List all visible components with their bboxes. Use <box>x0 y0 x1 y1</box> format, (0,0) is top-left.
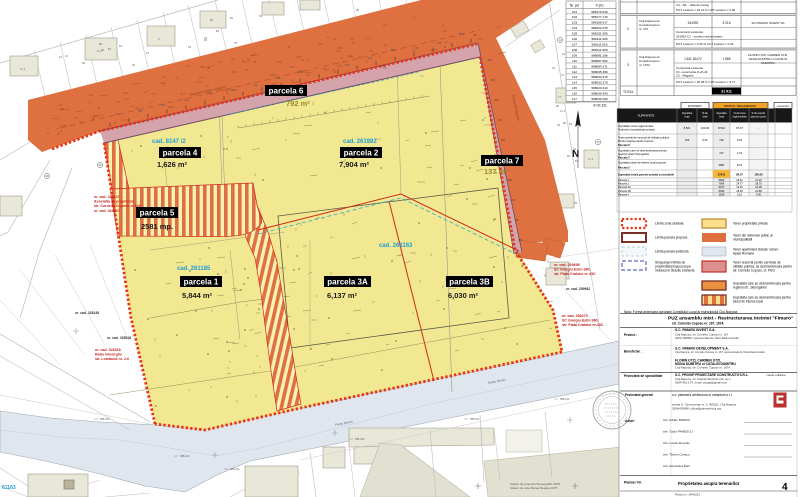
svg-text:21.89: 21.89 <box>755 189 762 193</box>
svg-text:1.61: 1.61 <box>737 151 743 155</box>
svg-text:Suprafata strazi de interes lo: Suprafata strazi de interes local propus… <box>618 161 667 165</box>
svg-text:nr. cad. 269695: nr. cad. 269695 <box>554 263 580 267</box>
svg-text:Parcela 3B: Parcela 3B <box>618 189 631 193</box>
svg-text:nr. cad. 328147: nr. cad. 328147 <box>94 209 120 213</box>
svg-text:0264-410.174, email: progip@gm: 0264-410.174, email: progip@gmail.com <box>675 380 728 384</box>
svg-text:PROPUS / REGLEMENTAT: PROPUS / REGLEMENTAT <box>724 104 757 108</box>
svg-text:316: 316 <box>368 56 373 60</box>
svg-text:DUMITRU: DUMITRU <box>761 61 774 65</box>
svg-text:6,030 m²: 6,030 m² <box>448 291 479 300</box>
svg-text:arh. Lucian Euranie: arh. Lucian Euranie <box>663 441 690 445</box>
svg-text:21.22: 21.22 <box>755 178 762 182</box>
svg-text:113: 113 <box>572 75 577 79</box>
svg-text:1626: 1626 <box>719 192 725 196</box>
svg-text:cad. 8147 /2: cad. 8147 /2 <box>152 139 186 145</box>
svg-text:strazi de interes local: strazi de interes local <box>733 300 763 304</box>
svg-text:Suprafata totala parcele priva: Suprafata totala parcele private constru… <box>618 173 675 177</box>
svg-text:28.70: 28.70 <box>755 182 762 186</box>
svg-text:Limita parcela propusa: Limita parcela propusa <box>655 236 687 240</box>
svg-text:216: 216 <box>207 91 212 95</box>
svg-text:137: 137 <box>719 151 724 155</box>
svg-text:Parcela 4: Parcela 4 <box>618 192 630 196</box>
svg-text:320: 320 <box>184 98 189 102</box>
svg-text:100.00: 100.00 <box>701 126 710 130</box>
svg-text:C4 - S8 -- hala de parcaj: C4 - S8 -- hala de parcaj <box>676 3 709 7</box>
svg-text:5844: 5844 <box>719 178 725 182</box>
svg-text:(mp): (mp) <box>685 116 690 119</box>
svg-text:SC FIMARO INVEST SA: SC FIMARO INVEST SA <box>751 21 784 25</box>
svg-text:parcela 5: parcela 5 <box>140 209 175 218</box>
svg-text:588084.271: 588084.271 <box>591 64 608 68</box>
svg-text:Cluj-Napoca, str. Corneliu Cop: Cluj-Napoca, str. Corneliu Coposu nr. 16… <box>675 350 765 354</box>
svg-text:Beneficiar :: Beneficiar : <box>624 350 642 354</box>
svg-text:114: 114 <box>572 81 577 85</box>
svg-text:103: 103 <box>572 21 577 25</box>
svg-text:regimul strazii Strungarilor: regimul strazii Strungarilor <box>618 152 649 156</box>
svg-text:104: 104 <box>572 26 577 30</box>
svg-text:713: 713 <box>322 67 327 71</box>
svg-text:108: 108 <box>572 48 577 52</box>
svg-text:609: 609 <box>437 41 442 45</box>
svg-text:POT existent = 5.45 % CUT: POT existent = 5.45 % CUT existent = 0.2… <box>676 42 734 46</box>
svg-text:SC Giurgiu Estin SRL: SC Giurgiu Estin SRL <box>562 319 600 323</box>
svg-text:nr. cad. 259982: nr. cad. 259982 <box>566 287 590 291</box>
svg-text:882: 882 <box>391 48 396 52</box>
svg-text:nr. cad. 328147: nr. cad. 328147 <box>94 195 120 199</box>
svg-text:- retele edilitare: - retele edilitare <box>765 373 786 377</box>
svg-text:3: 3 <box>627 63 629 67</box>
svg-text:112: 112 <box>572 70 577 74</box>
svg-text:588222.378: 588222.378 <box>591 26 608 30</box>
svg-text:POT existent = 26.41 % CU: POT existent = 26.41 % CUT existent = 0.… <box>676 8 735 12</box>
svg-text:0264 406066, reprezentata de T: 0264 406066, reprezentata de Tarta Radu … <box>675 336 739 340</box>
svg-text:arh. Tiberiu Ciolacu: arh. Tiberiu Ciolacu <box>663 453 690 457</box>
svg-text:total: total <box>703 116 708 119</box>
svg-text:Parcela 6: Parcela 6 <box>618 143 630 147</box>
svg-text:792 m²: 792 m² <box>286 99 310 108</box>
svg-text:86.07: 86.07 <box>736 173 743 177</box>
svg-text:parcela 6: parcela 6 <box>269 87 304 96</box>
svg-text:Ratiu Gheorghe: Ratiu Gheorghe <box>95 353 122 357</box>
svg-text:regimul str. .Strungarilor: regimul str. .Strungarilor <box>733 286 768 290</box>
svg-text:588081.166: 588081.166 <box>591 53 608 57</box>
svg-text:5,844 m²: 5,844 m² <box>182 291 213 300</box>
svg-text:110: 110 <box>572 59 577 63</box>
svg-text:7904: 7904 <box>719 182 725 186</box>
svg-text:378: 378 <box>115 112 120 116</box>
svg-text:7,904 m²: 7,904 m² <box>339 160 370 169</box>
svg-text:792: 792 <box>719 138 724 142</box>
svg-text:6,137 m²: 6,137 m² <box>327 291 358 300</box>
svg-text:2: 2 <box>627 27 629 31</box>
svg-text:261992: 261992 <box>688 21 699 25</box>
svg-text:435: 435 <box>414 46 419 50</box>
svg-text:588030.460: 588030.460 <box>591 97 608 101</box>
svg-text:27541: 27541 <box>718 173 726 177</box>
svg-text:117: 117 <box>572 97 577 101</box>
svg-text:102: 102 <box>572 15 577 19</box>
svg-text:C2 - Magazin: C2 - Magazin <box>676 74 694 78</box>
svg-text:parcela 3A: parcela 3A <box>327 278 368 287</box>
svg-text:279: 279 <box>460 32 465 36</box>
svg-text:nr. 167: nr. 167 <box>639 27 649 31</box>
svg-text:mutarea in strazile existente: mutarea in strazile existente <box>655 269 695 273</box>
svg-text:588035.360: 588035.360 <box>591 70 608 74</box>
svg-text:588175.816: 588175.816 <box>591 10 608 14</box>
svg-text:Pentru largirea strazii Coposu: Pentru largirea strazii Coposu <box>618 139 654 143</box>
svg-text:588188.917: 588188.917 <box>591 21 608 25</box>
svg-text:261992-C1 -- pavilion administ: 261992-C1 -- pavilion administrativ <box>676 34 723 38</box>
svg-text:Proiectant general: Proiectant general <box>625 393 653 397</box>
svg-text:588.193: 588.193 <box>470 417 480 421</box>
svg-text:Teren grevat de servituti de u: Teren grevat de servituti de utilitate p… <box>618 136 669 140</box>
svg-text:116: 116 <box>572 92 577 96</box>
svg-text:P+1: P+1 <box>560 109 566 113</box>
svg-text:Sistem de cote Marea Neagra 1: Sistem de cote Marea Neagra 1975 <box>510 486 558 490</box>
svg-text:8.501: 8.501 <box>684 126 691 130</box>
svg-text:Plansa / Nr.: Plansa / Nr. <box>624 481 642 485</box>
svg-text:309: 309 <box>345 63 350 67</box>
svg-text:Nr. pct: Nr. pct <box>570 4 579 8</box>
svg-text:cad. 261185: cad. 261185 <box>177 266 211 272</box>
svg-text:P+1: P+1 <box>20 67 26 71</box>
svg-text:8.15: 8.15 <box>737 163 743 167</box>
svg-text:9.32: 9.32 <box>737 138 743 142</box>
svg-text:CAD: 81472: CAD: 81472 <box>684 57 702 61</box>
svg-text:P+1: P+1 <box>588 157 594 161</box>
svg-text:str. Corneliu Coposu nr. 167,: str. Corneliu Coposu nr. 167, 167A <box>672 322 724 326</box>
svg-text:N: N <box>572 149 579 160</box>
svg-text:5.90: 5.90 <box>756 192 762 196</box>
svg-text:639: 639 <box>276 76 281 80</box>
svg-text:Total teren (proprietate priva: Total teren (proprietate privata) <box>618 128 655 132</box>
svg-text:588.193: 588.193 <box>180 454 190 458</box>
svg-text:S.C. FIMARO DEVELOPMENT S.A.: S.C. FIMARO DEVELOPMENT S.A. <box>675 346 729 350</box>
svg-text:794: 794 <box>253 83 258 87</box>
svg-text:-: - <box>758 127 759 130</box>
svg-text:Suprafata zonei reglementate: Suprafata zonei reglementate <box>618 124 654 128</box>
svg-text:18.31: 18.31 <box>736 178 743 182</box>
svg-text:Cluj-Napoca, str. Corneliu Cop: Cluj-Napoca, str. Corneliu Coposu nr. 16… <box>675 365 730 369</box>
svg-text:19.23: 19.23 <box>736 185 743 189</box>
svg-text:Parcela 5: Parcela 5 <box>618 166 630 170</box>
svg-text:POT existent = 26.48 % CU: POT existent = 26.48 % CUT existent = 0.… <box>676 80 735 84</box>
svg-text:534: 534 <box>138 109 143 113</box>
svg-text:1 888: 1 888 <box>723 57 731 61</box>
svg-text:5.10: 5.10 <box>737 192 743 196</box>
svg-text:parcela 7: parcela 7 <box>485 157 520 166</box>
svg-text:str. Piata Cralului nr 43C: str. Piata Cralului nr 43C <box>554 272 596 276</box>
svg-text:TOTAL: TOTAL <box>623 90 634 94</box>
svg-text:parcela 4: parcela 4 <box>163 149 198 158</box>
svg-text:2581 mp.: 2581 mp. <box>141 222 173 231</box>
svg-text:parcela 2: parcela 2 <box>344 149 379 158</box>
svg-text:Parcela 2: Parcela 2 <box>618 182 630 186</box>
svg-text:cad. 261163: cad. 261163 <box>379 243 413 249</box>
svg-text:8.501: 8.501 <box>718 126 725 130</box>
svg-text:24.77: 24.77 <box>736 182 743 186</box>
svg-text:588020.310: 588020.310 <box>591 86 608 90</box>
svg-text:Proprietatea asupra terenurilo: Proprietatea asupra terenurilor <box>678 481 740 486</box>
svg-text:137 m²: 137 m² <box>484 167 508 176</box>
svg-text:arh. Alexandra Mari: arh. Alexandra Mari <box>663 464 690 468</box>
svg-text:18.90: 18.90 <box>736 189 743 193</box>
svg-text:588.193: 588.193 <box>230 467 240 471</box>
svg-text:552: 552 <box>161 103 166 107</box>
svg-text:97.97: 97.97 <box>736 126 743 130</box>
svg-text:115: 115 <box>572 86 577 90</box>
svg-text:Parcela 3A: Parcela 3A <box>618 185 631 189</box>
svg-text:municipalitatii: municipalitatii <box>733 238 752 242</box>
svg-text:str. Corneliu Coposu, cf. PUG: str. Corneliu Coposu, cf. PUG <box>733 269 775 273</box>
svg-text:106: 106 <box>572 37 577 41</box>
svg-text:101: 101 <box>572 10 577 14</box>
svg-text:parcela 1: parcela 1 <box>184 278 219 287</box>
svg-text:Proiect :: Proiect : <box>624 333 637 337</box>
svg-text:588.193: 588.193 <box>560 397 570 401</box>
svg-text:111: 111 <box>572 64 577 68</box>
svg-text:s.c. planwerk arhitectura si u: s.c. planwerk arhitectura si urbanism s.… <box>672 393 733 397</box>
svg-text:str. Lombului nr. 2-6: str. Lombului nr. 2-6 <box>95 357 129 361</box>
svg-text:107: 107 <box>572 43 577 47</box>
svg-text:nr. cad. 328518: nr. cad. 328518 <box>107 336 131 340</box>
svg-text:588033.170: 588033.170 <box>591 81 608 85</box>
svg-text:Apele Romane: Apele Romane <box>733 252 754 256</box>
svg-text:reglementata: reglementata <box>733 116 748 119</box>
svg-text:792: 792 <box>685 138 690 142</box>
svg-text:OBSERVATII: OBSERVATII <box>777 105 790 108</box>
svg-text:9.32: 9.32 <box>702 138 708 142</box>
svg-text:S=31.911: S=31.911 <box>593 104 607 108</box>
svg-text:Asociatia de proprietari: Asociatia de proprietari <box>94 200 134 204</box>
svg-text:cad. 261992: cad. 261992 <box>343 139 377 145</box>
svg-text:22.28: 22.28 <box>755 185 762 189</box>
svg-text:parcele constr.: parcele constr. <box>751 116 767 119</box>
svg-text:31 911: 31 911 <box>721 90 732 94</box>
svg-text:105: 105 <box>572 32 577 36</box>
svg-text:588151.906: 588151.906 <box>591 32 608 36</box>
svg-text:588.193: 588.193 <box>355 437 365 441</box>
svg-text:588087.952: 588087.952 <box>591 59 608 63</box>
svg-text:588114.956: 588114.956 <box>591 48 607 52</box>
svg-text:100.00: 100.00 <box>754 173 763 177</box>
svg-text:nr. cad. 326318: nr. cad. 326318 <box>95 348 121 352</box>
svg-text:Teren proprietate privata: Teren proprietate privata <box>733 222 768 226</box>
svg-text:parcela 3B: parcela 3B <box>449 278 490 287</box>
svg-text:P: P <box>158 37 160 41</box>
svg-text:588030.478: 588030.478 <box>591 75 608 79</box>
svg-text:6137: 6137 <box>719 185 725 189</box>
svg-text:S.C. FIMARO INVEST S.A.: S.C. FIMARO INVEST S.A. <box>675 328 716 332</box>
svg-text:(mp): (mp) <box>719 116 724 119</box>
svg-text:1,626 m²: 1,626 m² <box>157 160 188 169</box>
svg-text:Proiectant de specialitate: Proiectant de specialitate <box>624 374 663 378</box>
svg-text:nr. cad. 280273: nr. cad. 280273 <box>562 314 588 318</box>
svg-text:109: 109 <box>572 53 577 57</box>
svg-text:nr. cad. 328148: nr. cad. 328148 <box>75 311 99 315</box>
svg-text:588111.916: 588111.916 <box>592 43 608 47</box>
svg-text:str. Piata Cralului nr.43C: str. Piata Cralului nr.43C <box>562 323 604 327</box>
svg-text:588030.460: 588030.460 <box>591 92 608 96</box>
svg-text:0264/439488, office@planwerkcl: 0264/439488, office@planwerkcluj.org <box>672 407 722 411</box>
svg-text:Limita zona studiata: Limita zona studiata <box>655 222 684 226</box>
svg-text:9.216: 9.216 <box>723 21 731 25</box>
svg-text:588177.716: 588177.716 <box>591 15 608 19</box>
svg-text:Parcela 1: Parcela 1 <box>618 178 630 182</box>
svg-text:588111.926: 588111.926 <box>592 37 608 41</box>
svg-text:EXISTENT: EXISTENT <box>688 104 702 108</box>
svg-text:SC Giurgiu Estin SRL: SC Giurgiu Estin SRL <box>554 268 592 272</box>
svg-text:146: 146 <box>299 70 304 74</box>
svg-text:4: 4 <box>782 482 788 493</box>
svg-text:Parcela 7: Parcela 7 <box>618 156 630 160</box>
svg-text:arh. Adrian BORDA: arh. Adrian BORDA <box>663 418 691 422</box>
svg-text:2581: 2581 <box>719 163 725 167</box>
svg-text:X (m): X (m) <box>596 4 604 8</box>
svg-text:Limita parcela existenta: Limita parcela existenta <box>655 250 689 254</box>
svg-text:588.193: 588.193 <box>100 417 110 421</box>
svg-text:Suprafata care se dezmembreaza: Suprafata care se dezmembreaza pentru <box>618 149 667 153</box>
svg-text:nr. 167A: nr. 167A <box>639 63 650 67</box>
svg-text:str. Corneliu Coposu nr.166: str. Corneliu Coposu nr.166 <box>94 204 141 208</box>
svg-text:SUPRAFETE: SUPRAFETE <box>638 114 655 118</box>
svg-text:arh. Tudor PANESCU: arh. Tudor PANESCU <box>663 430 693 434</box>
svg-text:6030: 6030 <box>719 189 725 193</box>
svg-text:Proiect nr. 344/2013: Proiect nr. 344/2013 <box>675 493 700 497</box>
svg-text:61163: 61163 <box>2 485 16 491</box>
